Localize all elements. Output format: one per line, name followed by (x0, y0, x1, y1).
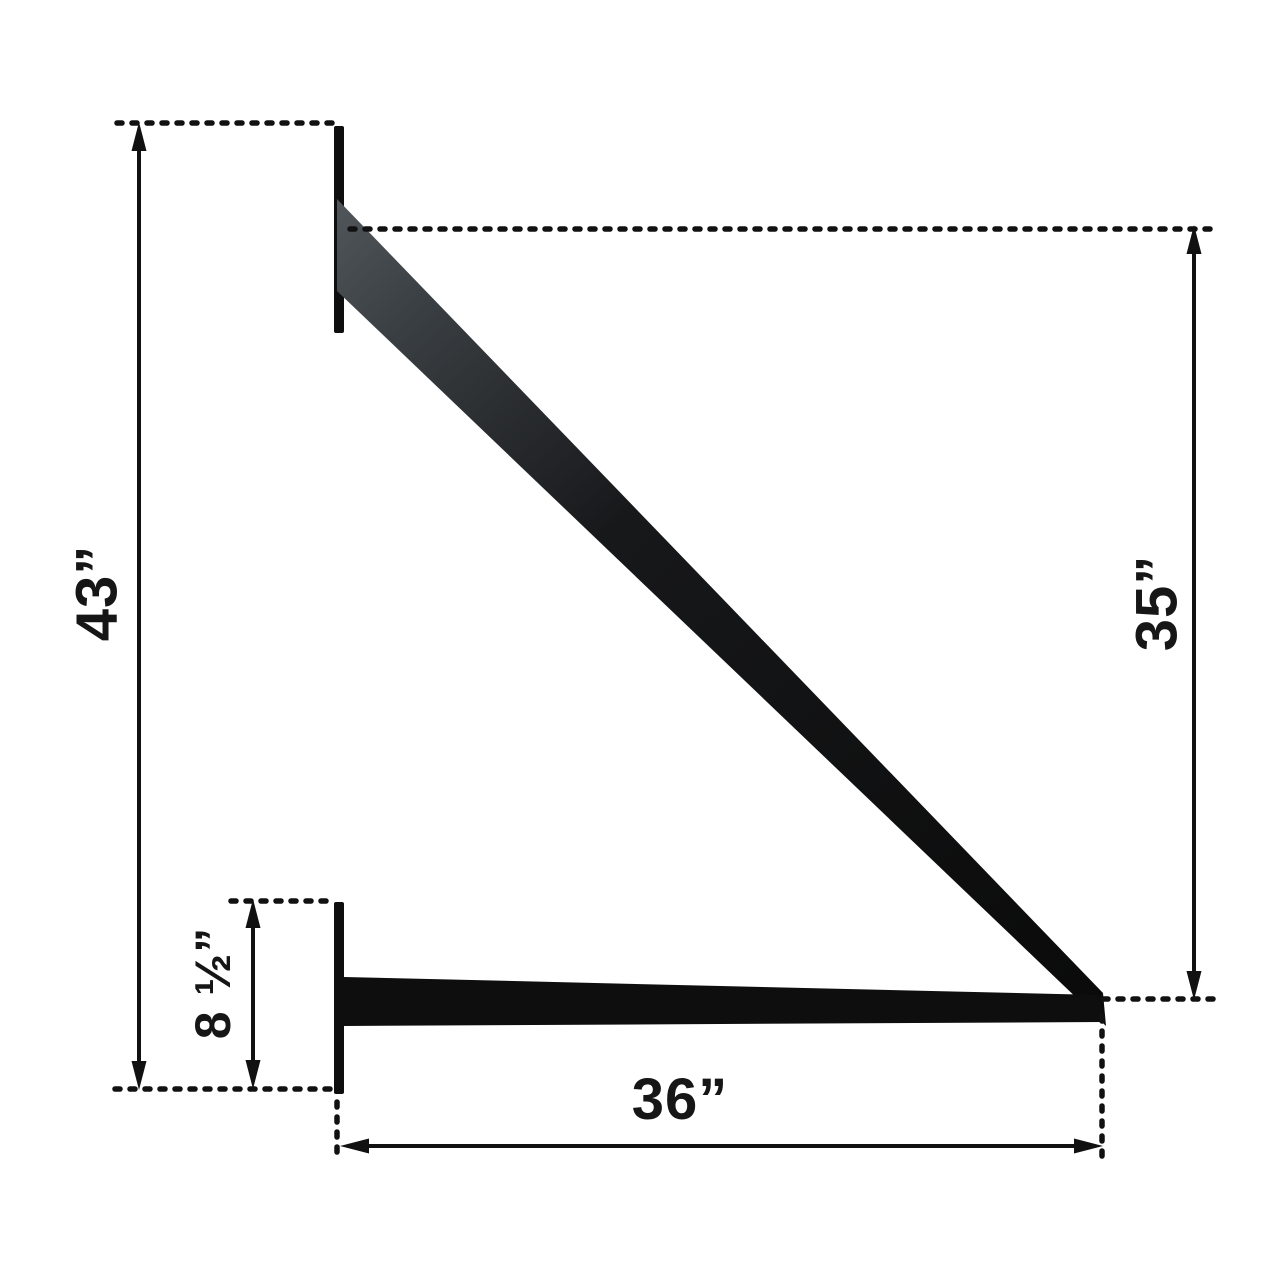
bottom-mount-plate (334, 902, 344, 1094)
label-plate-height: 8 ½” (185, 927, 241, 1039)
label-arm-length: 36” (632, 1067, 729, 1132)
label-overall-height: 43” (65, 545, 130, 642)
arrow-up-icon (132, 122, 147, 151)
bracket (334, 126, 1106, 1094)
bracket-dimension-drawing: 43” 35” 8 ½” 36” (0, 0, 1280, 1280)
diagram-canvas: 43” 35” 8 ½” 36” (0, 0, 1280, 1280)
label-brace-drop: 35” (1125, 555, 1190, 652)
arrow-down-icon (132, 1061, 147, 1090)
bottom-arm (344, 977, 1104, 1026)
diagonal-brace (337, 199, 1106, 1026)
arrow-down-icon (246, 1060, 261, 1089)
arrow-down-icon (1187, 971, 1202, 1000)
arrow-right-icon (1074, 1139, 1103, 1154)
dimension-brace-drop: 35” (350, 225, 1218, 1000)
dimension-plate-height: 8 ½” (185, 899, 331, 1089)
dimension-arm-length: 36” (337, 1016, 1103, 1162)
arrow-left-icon (340, 1139, 369, 1154)
